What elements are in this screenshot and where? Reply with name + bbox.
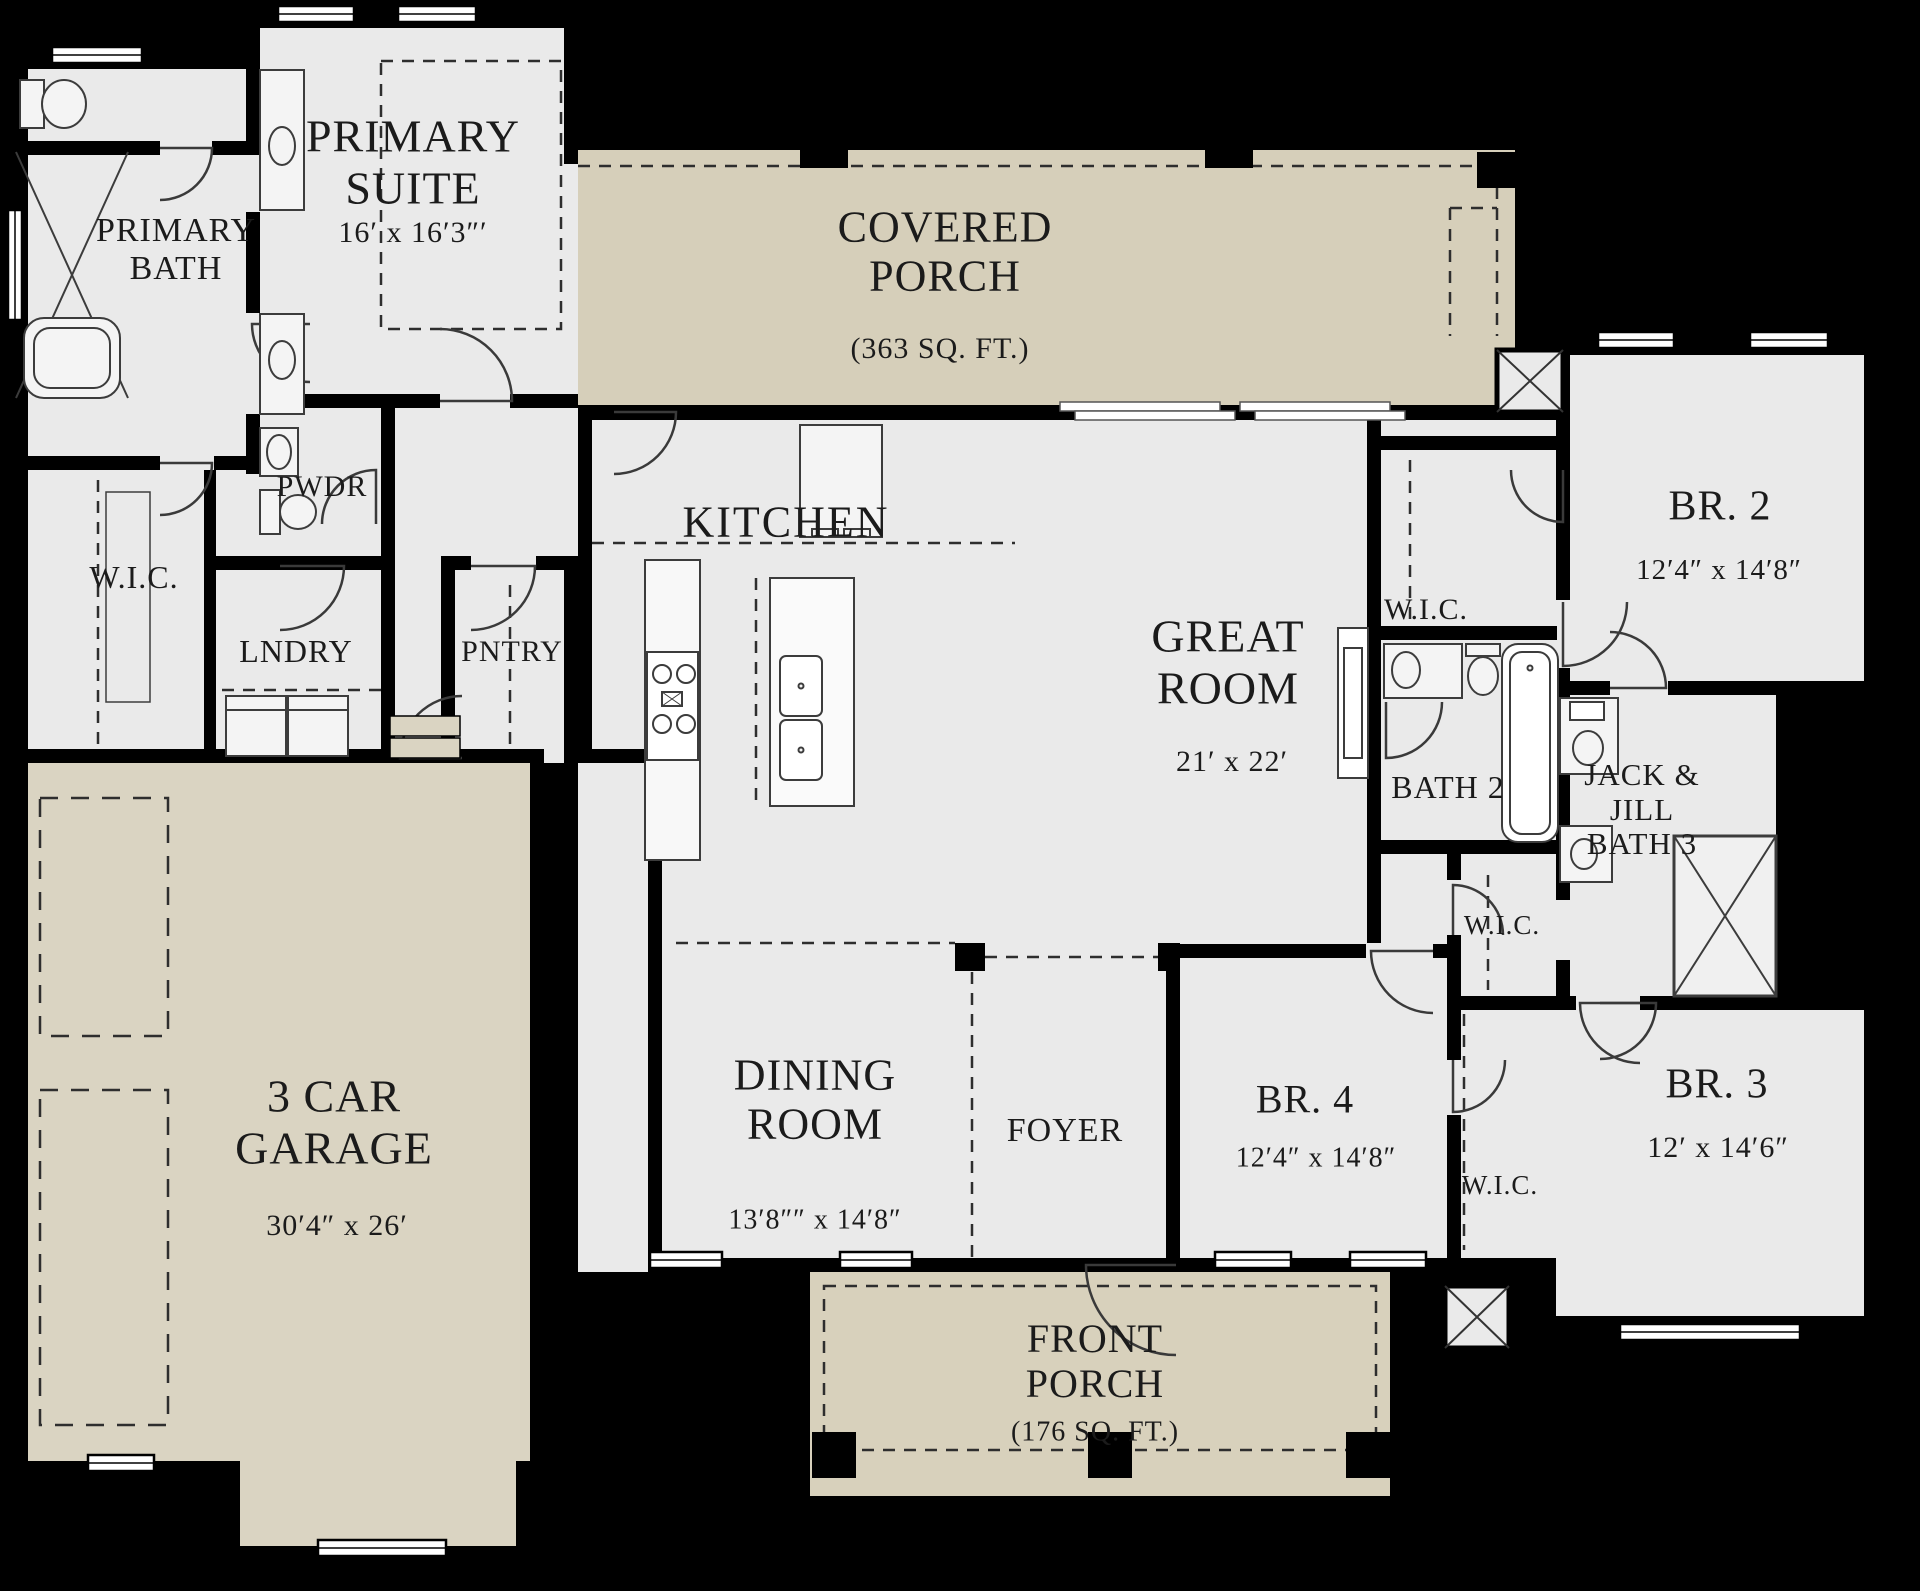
washer-dryer-icon <box>226 696 348 756</box>
room-dims-garage: 30′4″ x 26′ <box>266 1209 408 1243</box>
room-area-covered-porch: (363 SQ. FT.) <box>850 332 1029 366</box>
room-label-br3: BR. 3 <box>1665 1061 1768 1108</box>
room-label-br2: BR. 2 <box>1668 483 1771 530</box>
island-icon <box>770 578 854 806</box>
room-label-covered-porch: COVERED PORCH <box>838 203 1053 302</box>
room-label-pwdr: PWDR <box>277 470 368 504</box>
room-label-front-porch: FRONT PORCH <box>1026 1317 1164 1407</box>
room-label-wic-mid: W.I.C. <box>1464 910 1540 940</box>
room-label-primary-suite: PRIMARY SUITE <box>306 110 520 213</box>
room-label-bath2: BATH 2 <box>1391 770 1505 806</box>
room-label-wic-primary: W.I.C. <box>89 560 178 596</box>
room-label-pntry: PNTRY <box>461 635 563 669</box>
floor-plan: PRIMARY BATH PRIMARY SUITE 16′ x 16′3″′ … <box>0 0 1920 1591</box>
room-label-garage: 3 CAR GARAGE <box>235 1070 433 1173</box>
room-dims-br2: 12′4″ x 14′8″ <box>1636 554 1802 586</box>
room-label-foyer: FOYER <box>1007 1112 1123 1150</box>
fireplace-icon <box>1338 628 1368 778</box>
room-label-kitchen: KITCHEN <box>682 497 889 546</box>
room-label-great-room: GREAT ROOM <box>1151 610 1304 713</box>
room-dims-br3: 12′ x 14′6″ <box>1647 1131 1789 1165</box>
room-dims-br4: 12′4″ x 14′8″ <box>1236 1142 1397 1173</box>
toilet-icon <box>20 80 86 128</box>
room-label-br4: BR. 4 <box>1256 1078 1354 1123</box>
room-dims-great-room: 21′ x 22′ <box>1176 745 1288 779</box>
room-label-wic-br2: W.I.C. <box>1384 593 1468 627</box>
room-dims-primary-suite: 16′ x 16′3″′ <box>338 216 487 250</box>
tub-icon <box>24 318 120 398</box>
room-label-jack-jill-bath3: JACK & JILL BATH 3 <box>1584 758 1699 862</box>
room-label-primary-bath: PRIMARY BATH <box>96 212 256 288</box>
room-label-dining: DINING ROOM <box>734 1051 896 1150</box>
room-label-lndry: LNDRY <box>239 634 352 670</box>
room-dims-dining: 13′8″″ x 14′8″ <box>728 1204 901 1235</box>
range-icon <box>645 560 700 860</box>
room-area-front-porch: (176 SQ. FT.) <box>1011 1416 1179 1447</box>
room-label-wic-br4: W.I.C. <box>1462 1170 1538 1200</box>
